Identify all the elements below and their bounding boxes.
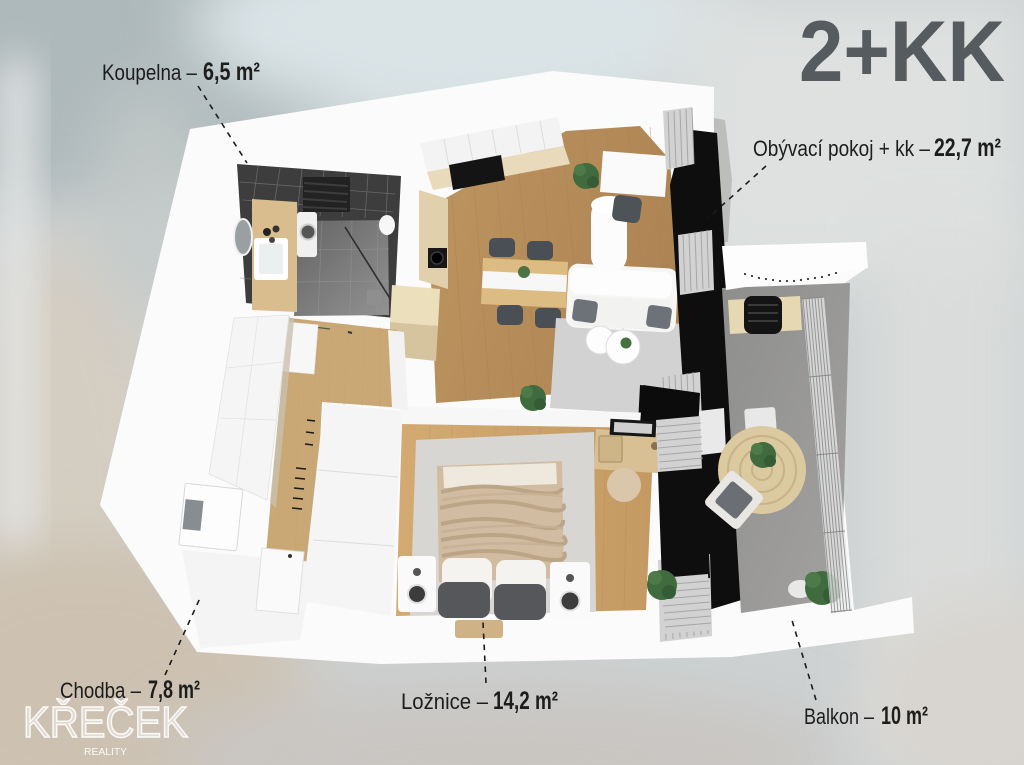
svg-text:Ložnice –: Ložnice – (401, 689, 489, 714)
svg-text:22,7 m²: 22,7 m² (934, 134, 1001, 162)
svg-text:Koupelna –: Koupelna – (102, 60, 198, 85)
svg-text:KŘEČEK: KŘEČEK (23, 697, 188, 747)
svg-text:REALITY: REALITY (84, 746, 127, 758)
svg-text:Obývací pokoj + kk –: Obývací pokoj + kk – (753, 136, 931, 161)
svg-text:14,2 m²: 14,2 m² (493, 687, 558, 715)
svg-text:Balkon –: Balkon – (804, 704, 875, 729)
svg-text:6,5 m²: 6,5 m² (203, 58, 260, 86)
svg-text:10 m²: 10 m² (881, 702, 928, 730)
svg-text:2+KK: 2+KK (799, 4, 1005, 100)
